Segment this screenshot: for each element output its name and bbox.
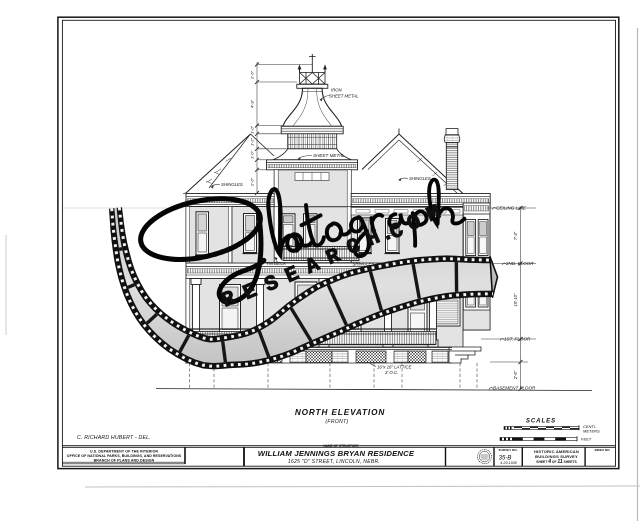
svg-text:1ST. FLOOR: 1ST. FLOOR <box>504 337 531 342</box>
svg-text:SHINGLES: SHINGLES <box>409 176 431 181</box>
svg-text:METERS: METERS <box>583 428 600 433</box>
svg-text:(FRONT): (FRONT) <box>325 419 348 425</box>
svg-text:2'-6": 2'-6" <box>250 70 255 80</box>
svg-text:U.S. DEPARTMENT OF THE INTERIO: U.S. DEPARTMENT OF THE INTERIOR <box>90 450 158 454</box>
svg-text:NAME OF STRUCTURE: NAME OF STRUCTURE <box>323 444 358 448</box>
svg-text:NORTH ELEVATION: NORTH ELEVATION <box>295 408 386 417</box>
svg-text:2ND. FLOOR: 2ND. FLOOR <box>505 261 534 266</box>
svg-text:16"x 16" LATTICE: 16"x 16" LATTICE <box>377 365 412 370</box>
svg-text:BASEMENT FLOOR: BASEMENT FLOOR <box>493 386 536 391</box>
svg-text:CEILING LINE: CEILING LINE <box>496 206 527 211</box>
svg-text:1'-0": 1'-0" <box>250 125 255 134</box>
svg-text:TIN DECK: TIN DECK <box>266 261 287 266</box>
svg-text:SHEET METAL: SHEET METAL <box>329 94 359 99</box>
svg-text:1625 "D" STREET, LINCOLN, NE: 1625 "D" STREET, LINCOLN, NEBR. <box>288 459 380 465</box>
svg-text:SURVEY NO.: SURVEY NO. <box>499 448 518 452</box>
svg-text:3' O.C.: 3' O.C. <box>385 370 398 375</box>
svg-text:SCALES: SCALES <box>526 419 556 425</box>
svg-text:SHINGLES: SHINGLES <box>221 182 243 187</box>
svg-text:FEET: FEET <box>581 437 592 442</box>
svg-text:4-29-1938: 4-29-1938 <box>500 461 516 465</box>
svg-text:2'-0": 2'-0" <box>250 177 255 187</box>
svg-text:10'-10": 10'-10" <box>513 293 518 307</box>
svg-text:BRANCH OF PLANS AND DESIGN: BRANCH OF PLANS AND DESIGN <box>94 458 155 462</box>
svg-text:IRON: IRON <box>331 88 343 93</box>
svg-text:C. RICHARD HUBERT - DEL.: C. RICHARD HUBERT - DEL. <box>77 435 151 441</box>
svg-text:1'-0": 1'-0" <box>250 150 255 159</box>
svg-text:SHEET METAL: SHEET METAL <box>313 153 345 158</box>
svg-text:1'-2": 1'-2" <box>250 137 255 146</box>
svg-text:7'-3": 7'-3" <box>513 231 518 240</box>
svg-text:4'-9": 4'-9" <box>250 99 255 108</box>
svg-text:WILLIAM JENNINGS BRYAN RESIDEN: WILLIAM JENNINGS BRYAN RESIDENCE <box>258 449 415 458</box>
svg-text:INDEX NO.: INDEX NO. <box>595 448 611 452</box>
svg-text:2'-6": 2'-6" <box>513 370 518 380</box>
